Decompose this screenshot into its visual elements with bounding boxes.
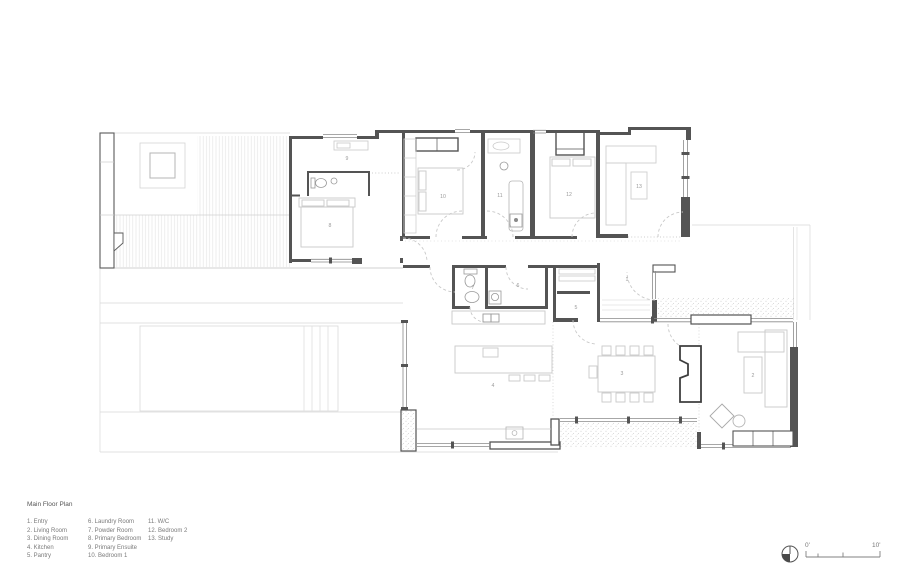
room-number-dining: 3 (621, 371, 624, 377)
legend-column-2: 6. Laundry Room 7. Powder Room 8. Primar… (88, 518, 141, 561)
media-bench (733, 431, 793, 446)
scale-bar: 0' 10' (805, 542, 880, 557)
scale-zero-label: 0' (805, 542, 810, 549)
legend-item: 3. Dining Room (27, 535, 68, 544)
legend-item: 10. Bedroom 1 (88, 552, 141, 561)
floor-plan-page: 1 2 3 4 5 6 7 8 9 10 11 12 13 0' 10' Mai… (0, 0, 900, 583)
room-number-study: 13 (636, 184, 642, 190)
laundry-washer (489, 291, 501, 304)
door-arcs (403, 152, 694, 350)
carport-hatch (115, 215, 290, 268)
room-number-ensuite: 9 (346, 156, 349, 162)
skylight (140, 143, 185, 188)
study-desk (606, 146, 656, 225)
legend-item: 1. Entry (27, 518, 68, 527)
walls (289, 127, 798, 451)
fireplace (680, 346, 701, 402)
room-number-bedroom1: 10 (440, 194, 446, 200)
armchair (710, 404, 734, 428)
stipple-paving (560, 297, 795, 447)
room-number-entry: 1 (626, 277, 629, 283)
wardrobes (416, 132, 584, 155)
ensuite-partition (290, 172, 369, 196)
pantry-shelves (559, 269, 595, 281)
floor-plan-drawing: 1 2 3 4 5 6 7 8 9 10 11 12 13 0' 10' (0, 0, 900, 583)
wc-fixtures (488, 139, 523, 231)
room-number-kitchen: 4 (492, 383, 495, 389)
carport-hatch (197, 136, 290, 215)
bedroom1-closet (404, 139, 416, 233)
scale-ten-label: 10' (872, 542, 880, 549)
legend-item: 4. Kitchen (27, 544, 68, 553)
legend-column-1: 1. Entry 2. Living Room 3. Dining Room 4… (27, 518, 68, 561)
legend-item: 2. Living Room (27, 527, 68, 536)
sliding-door (691, 315, 751, 324)
page-title: Main Floor Plan (27, 501, 73, 508)
legend-item: 8. Primary Bedroom (88, 535, 141, 544)
living-sofa (738, 330, 787, 407)
room-number-primary-bedroom: 8 (329, 223, 332, 229)
ensuite-fixtures (311, 141, 368, 188)
hall-counter (452, 311, 545, 324)
legend-item: 7. Powder Room (88, 527, 141, 536)
bedroom2-bed (550, 157, 595, 218)
room-number-bedroom2: 12 (566, 192, 572, 198)
room-number-living: 2 (752, 373, 755, 379)
legend-item: 13. Study (148, 535, 187, 544)
legend-item: 9. Primary Ensuite (88, 544, 141, 553)
legend-column-3: 11. W/C 12. Bedroom 2 13. Study (148, 518, 187, 544)
kitchen-island (455, 346, 552, 381)
side-table (733, 415, 745, 427)
kitchen-counter (417, 427, 551, 439)
bedroom1-bed (418, 168, 463, 214)
primary-bed (299, 198, 355, 247)
carport-wall (100, 133, 114, 268)
legend-item: 12. Bedroom 2 (148, 527, 187, 536)
room-number-powder: 7 (472, 285, 475, 291)
pool (140, 326, 338, 411)
legend-item: 11. W/C (148, 518, 187, 527)
north-arrow-icon (782, 546, 798, 562)
room-number-pantry: 5 (575, 305, 578, 311)
room-number-wc: 11 (497, 193, 502, 199)
legend-item: 6. Laundry Room (88, 518, 141, 527)
carport (100, 133, 290, 268)
room-number-laundry: 6 (517, 283, 520, 289)
legend-item: 5. Pantry (27, 552, 68, 561)
